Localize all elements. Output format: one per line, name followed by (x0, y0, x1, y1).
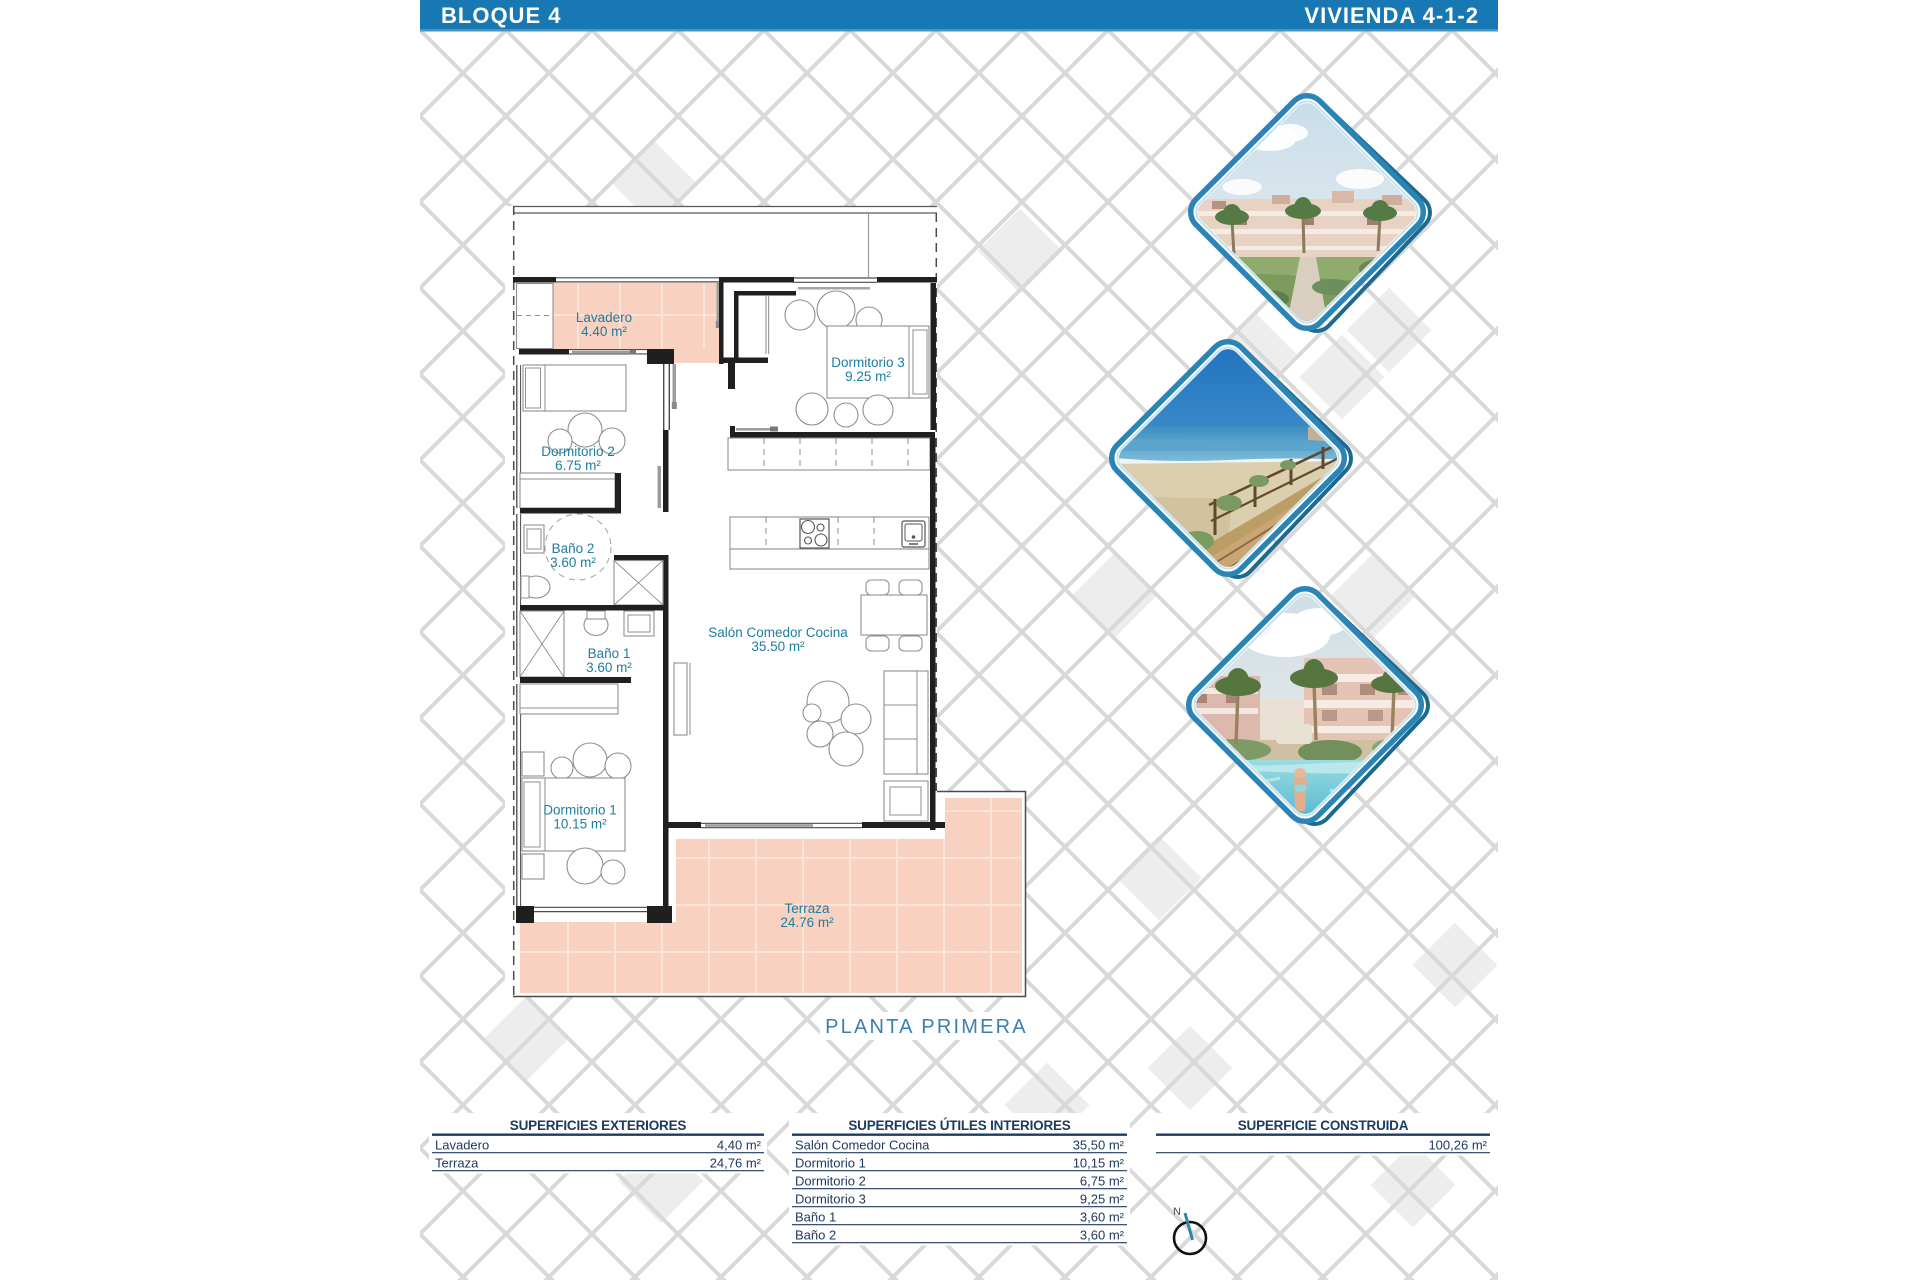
svg-text:24.76 m²: 24.76 m² (780, 915, 834, 930)
svg-text:SUPERFICIES EXTERIORES: SUPERFICIES EXTERIORES (510, 1118, 687, 1133)
svg-text:Salón Comedor Cocina: Salón Comedor Cocina (795, 1138, 930, 1153)
svg-text:Baño 2: Baño 2 (795, 1228, 836, 1243)
svg-text:35.50 m²: 35.50 m² (751, 639, 805, 654)
svg-text:6,75 m²: 6,75 m² (1080, 1174, 1125, 1189)
svg-text:Dormitorio 1: Dormitorio 1 (795, 1156, 866, 1171)
svg-text:100,26 m²: 100,26 m² (1428, 1138, 1487, 1153)
svg-text:Dormitorio 2: Dormitorio 2 (541, 444, 615, 459)
svg-text:9,25 m²: 9,25 m² (1080, 1192, 1125, 1207)
svg-text:3.60 m²: 3.60 m² (586, 660, 632, 675)
svg-text:N: N (1173, 1206, 1181, 1218)
svg-text:3,60 m²: 3,60 m² (1080, 1228, 1125, 1243)
svg-text:10.15 m²: 10.15 m² (553, 817, 607, 832)
svg-text:PLANTA PRIMERA: PLANTA PRIMERA (825, 1016, 1028, 1038)
svg-text:Lavadero: Lavadero (435, 1138, 489, 1153)
svg-text:Baño 2: Baño 2 (552, 541, 595, 556)
svg-text:35,50 m²: 35,50 m² (1073, 1138, 1125, 1153)
svg-text:10,15 m²: 10,15 m² (1073, 1156, 1125, 1171)
svg-text:BLOQUE 4: BLOQUE 4 (441, 3, 561, 28)
svg-text:Dormitorio 3: Dormitorio 3 (795, 1192, 866, 1207)
svg-text:Baño 1: Baño 1 (588, 646, 631, 661)
svg-text:Dormitorio 1: Dormitorio 1 (543, 803, 617, 818)
svg-text:Baño 1: Baño 1 (795, 1210, 836, 1225)
svg-text:Salón Comedor Cocina: Salón Comedor Cocina (708, 625, 848, 640)
svg-text:9.25 m²: 9.25 m² (845, 369, 891, 384)
svg-text:4,40 m²: 4,40 m² (717, 1138, 762, 1153)
svg-text:Dormitorio 3: Dormitorio 3 (831, 355, 905, 370)
svg-text:Terraza: Terraza (435, 1156, 479, 1171)
svg-text:3,60 m²: 3,60 m² (1080, 1210, 1125, 1225)
svg-text:24,76 m²: 24,76 m² (710, 1156, 762, 1171)
svg-text:Dormitorio 2: Dormitorio 2 (795, 1174, 866, 1189)
svg-text:Lavadero: Lavadero (576, 310, 632, 325)
svg-text:SUPERFICIES ÚTILES INTERIORES: SUPERFICIES ÚTILES INTERIORES (848, 1118, 1070, 1133)
svg-text:Terraza: Terraza (784, 901, 830, 916)
svg-text:4.40 m²: 4.40 m² (581, 324, 627, 339)
svg-text:SUPERFICIE CONSTRUIDA: SUPERFICIE CONSTRUIDA (1238, 1118, 1409, 1133)
svg-text:3.60 m²: 3.60 m² (550, 555, 596, 570)
svg-text:VIVIENDA 4-1-2: VIVIENDA 4-1-2 (1304, 3, 1479, 28)
svg-text:6.75 m²: 6.75 m² (555, 458, 601, 473)
